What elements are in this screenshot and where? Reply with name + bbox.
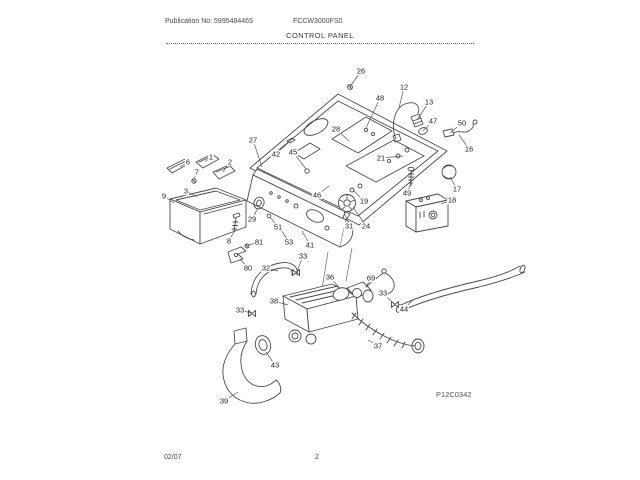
part-callout-19: 19 bbox=[359, 197, 369, 205]
part-callout-13: 13 bbox=[424, 98, 434, 106]
part-callout-26: 26 bbox=[356, 67, 366, 75]
part-callout-17: 17 bbox=[452, 185, 462, 193]
part-callout-53: 53 bbox=[284, 238, 294, 246]
part-callout-41: 41 bbox=[305, 241, 315, 249]
footer-date: 02/07 bbox=[164, 454, 182, 461]
part-callout-33: 33 bbox=[235, 306, 245, 314]
part-callout-2: 2 bbox=[227, 158, 233, 166]
part-callout-38: 38 bbox=[269, 297, 279, 305]
part-callout-46: 46 bbox=[312, 191, 322, 199]
footer-page-number: 2 bbox=[315, 454, 319, 461]
part-callout-43: 43 bbox=[270, 361, 280, 369]
part-callout-47: 47 bbox=[428, 117, 438, 125]
part-callout-1: 1 bbox=[208, 153, 214, 161]
parts-catalog-page: Publication No: 5995484465 FCCW3000FS0 C… bbox=[0, 0, 640, 480]
part-callout-50: 50 bbox=[457, 119, 467, 127]
part-callout-12: 12 bbox=[399, 83, 409, 91]
part-callout-29: 29 bbox=[247, 215, 257, 223]
part-callout-69: 69 bbox=[366, 274, 376, 282]
part-callout-80: 80 bbox=[243, 264, 253, 272]
part-callout-27: 27 bbox=[248, 136, 258, 144]
part-callout-18: 18 bbox=[447, 196, 457, 204]
part-callout-16: 16 bbox=[464, 145, 474, 153]
part-callout-51: 51 bbox=[273, 223, 283, 231]
exploded-parts-diagram: 2612481328475016274245211267392951534133… bbox=[0, 0, 640, 480]
part-callout-6: 6 bbox=[185, 158, 191, 166]
part-callout-48: 48 bbox=[375, 94, 385, 102]
part-callout-9: 9 bbox=[161, 192, 167, 200]
part-callout-21: 21 bbox=[376, 154, 386, 162]
part-callout-44: 44 bbox=[399, 305, 409, 313]
part-callout-33: 33 bbox=[378, 289, 388, 297]
part-callout-3: 3 bbox=[183, 187, 189, 195]
part-callout-32: 32 bbox=[261, 264, 271, 272]
part-callout-49: 49 bbox=[402, 189, 412, 197]
part-callout-37: 37 bbox=[373, 342, 383, 350]
part-callout-8: 8 bbox=[226, 237, 232, 245]
part-callout-81: 81 bbox=[254, 238, 264, 246]
part-callout-33: 33 bbox=[298, 252, 308, 260]
part-callout-24: 24 bbox=[361, 222, 371, 230]
part-callout-7: 7 bbox=[194, 168, 200, 176]
diagram-code: P12C0342 bbox=[436, 390, 471, 399]
part-callout-45: 45 bbox=[288, 148, 298, 156]
part-callout-42: 42 bbox=[271, 150, 281, 158]
part-callout-36: 36 bbox=[325, 273, 335, 281]
part-callout-39: 39 bbox=[219, 397, 229, 405]
part-callout-28: 28 bbox=[331, 125, 341, 133]
part-callout-31: 31 bbox=[344, 222, 354, 230]
callout-leader-lines bbox=[0, 0, 640, 480]
